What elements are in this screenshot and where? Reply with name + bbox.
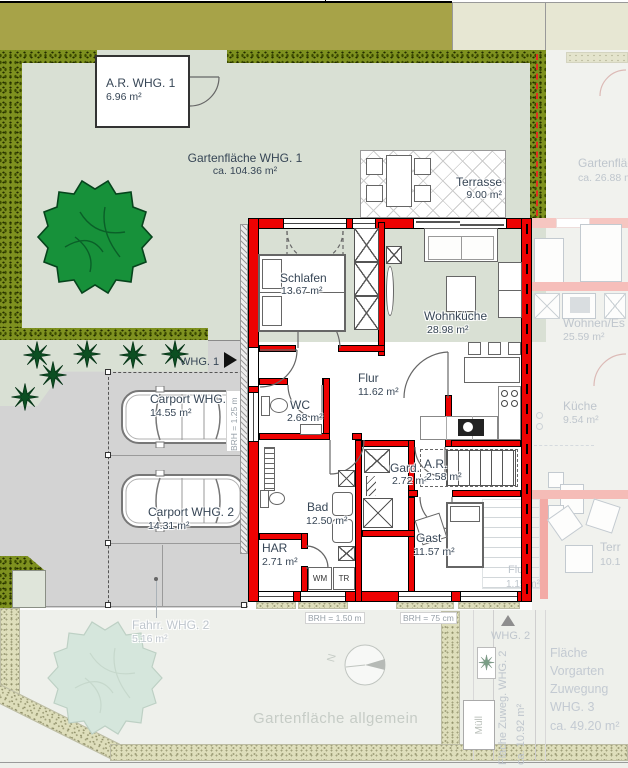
shed-area: 6.96 m²: [106, 91, 142, 104]
neighbor-wall: [532, 282, 628, 291]
carport1-area: 14.55 m²: [150, 407, 191, 420]
floor-plan: A.R. WHG. 1 6.96 m² Gartenfläche WHG. 1 …: [0, 0, 628, 768]
window-har: [258, 591, 294, 602]
room-area-gast: 11.57 m²: [414, 546, 455, 559]
wall-interior: [362, 440, 412, 447]
coat-rack: [366, 476, 376, 496]
service-shaft: [338, 546, 355, 561]
walkway-line: [535, 610, 536, 760]
field-strip-olive: [0, 3, 452, 50]
neighbor-kueche-area: 9.54 m²: [563, 414, 599, 427]
terrace-label: Terrasse 9.00 m²: [430, 175, 502, 202]
sliding-door-leaf: [460, 224, 504, 226]
wall-interior: [338, 345, 385, 352]
palm-shrub-icon: [38, 360, 68, 390]
window-bad: [300, 591, 346, 602]
terrace-chair: [366, 158, 383, 175]
garden2-label: Gartenfläc: [578, 156, 628, 170]
washing-machine: WM: [308, 567, 332, 590]
window-sill-gravel: [458, 602, 520, 609]
counter-divider: [446, 416, 447, 440]
entrance1-label: WHG. 1: [180, 356, 219, 369]
party-wall-dashes: [526, 224, 528, 596]
pillow: [262, 259, 282, 289]
room-area-schlafen: 13.67 m²: [281, 285, 322, 298]
carport-post: [105, 452, 111, 458]
garden1-label: Gartenfläche WHG. 1 ca. 104.36 m²: [150, 151, 340, 178]
room-area-gard: 2.72 m²: [392, 475, 428, 488]
vorgarten3-line2: Zuwegung: [550, 680, 628, 698]
room-label-gard: Gard.: [390, 461, 420, 475]
pillow: [450, 506, 480, 522]
neighbor-wall: [532, 490, 628, 499]
dining-chair: [468, 342, 481, 355]
neighbor-dash: [534, 445, 594, 446]
faded-hedge: [566, 52, 628, 63]
insulation-strip: [240, 224, 248, 554]
neighbor-wardrobe: [534, 238, 564, 284]
zuweg2-label: Fläche Zuweg. WHG. 2: [497, 645, 509, 765]
neighbor-sink: [570, 297, 590, 313]
carport-boundary-dashed-h: [108, 372, 248, 373]
toilet-bowl: [269, 492, 285, 505]
neighbor-terr-area: 10.1: [600, 556, 620, 569]
wohnkueche-door-arc: [402, 350, 452, 400]
neighbor-wohnen-label: Wohnen/Es: [563, 316, 625, 330]
window-french-door: [283, 218, 347, 229]
toilet-bowl: [270, 398, 288, 413]
muell-label: Müll: [474, 716, 485, 734]
leader-dot: [154, 577, 158, 581]
storage-divider: [162, 545, 163, 607]
hedge-top-right: [227, 50, 546, 63]
vorgarten3-line1: Fläche Vorgarten: [550, 644, 628, 680]
terrace-chair: [414, 185, 431, 202]
window-gast-west: [398, 591, 452, 602]
carport-boundary-dashed-v: [108, 372, 109, 608]
room-label-bad: Bad: [307, 500, 328, 514]
stove-burner: [501, 390, 508, 397]
neighbor-burner: [536, 423, 543, 430]
carport-divider: [108, 543, 248, 544]
window-sill-gravel: [298, 602, 348, 609]
gard-closet: [364, 449, 390, 473]
wall-interior: [452, 490, 521, 497]
room-area-flur: 11.62 m²: [358, 386, 399, 399]
neighbor-terrace-wall: [540, 499, 548, 599]
room-label-wc: WC: [290, 398, 310, 412]
stove-burner: [501, 400, 508, 407]
garden1-name: Gartenfläche WHG. 1: [150, 151, 340, 165]
shed-door-arc: [189, 74, 223, 110]
terrace-chair: [366, 185, 383, 202]
window-sill-gravel: [396, 602, 454, 609]
dryer: TR: [333, 567, 355, 590]
tree-icon: [35, 177, 155, 297]
tr-label: TR: [339, 574, 350, 583]
shed-label: A.R. WHG. 1: [106, 76, 175, 90]
garden2-area: ca. 26.88 m: [578, 172, 628, 185]
carport2-area: 14.31 m²: [148, 520, 189, 533]
neighbor-burner: [536, 412, 543, 419]
room-area-ar: 2.58 m²: [426, 471, 462, 484]
carport1-label: Carport WHG. 1: [150, 392, 236, 406]
palm-shrub-icon: [478, 654, 495, 671]
boundary-dashed-red: [536, 54, 538, 216]
neighbor-terr-label: Terr: [600, 540, 621, 554]
storage-line: [22, 606, 248, 607]
window-gast-east: [460, 591, 518, 602]
terrace-name: Terrasse: [430, 175, 502, 189]
mirror: [386, 266, 394, 316]
bottom-line: [0, 762, 628, 763]
coffee-table: [446, 276, 476, 312]
room-label-wohnkueche: Wohnküche: [424, 309, 487, 323]
wardrobe: [354, 262, 379, 296]
field-strip-beige: [452, 3, 628, 50]
room-label-ar: A.R.: [424, 457, 447, 471]
palm-shrub-icon: [72, 339, 102, 369]
room-area-har: 2.71 m²: [262, 556, 298, 569]
brh-label-bottom2: BRH = 75 cm: [400, 612, 457, 624]
radiator: [264, 447, 275, 491]
wm-label: WM: [313, 574, 327, 583]
palm-shrub-icon: [118, 340, 148, 370]
stove-burner: [511, 400, 518, 407]
brh-label-bottom1: BRH = 1.50 m: [305, 612, 365, 624]
shelf: [386, 246, 402, 264]
neighbor-cabinet: [534, 293, 560, 319]
room-area-bad: 12.50 m²: [306, 515, 347, 528]
wall-interior: [378, 222, 385, 356]
room-label-schlafen: Schlafen: [280, 271, 327, 285]
sink-basin: [463, 422, 473, 432]
neighbor-kueche-label: Küche: [563, 399, 597, 413]
wall-interior: [408, 490, 418, 497]
neighbor-wohnen-area: 25.59 m²: [563, 331, 604, 344]
compass-icon: [343, 643, 387, 687]
wc-sink: [300, 424, 322, 435]
toilet-tank: [260, 490, 269, 508]
carport-post: [105, 369, 111, 375]
room-label-gast: Gast: [416, 531, 441, 545]
terrace-table: [386, 155, 412, 207]
wall-interior: [323, 378, 330, 440]
zuweg2-area: ca. 10.92 m²: [515, 660, 527, 765]
room-label-flur: Flur: [358, 371, 379, 385]
muell-box: Müll: [463, 700, 495, 750]
wall-interior: [362, 530, 415, 537]
stove-burner: [511, 390, 518, 397]
sliding-door-leaf: [416, 221, 460, 223]
leader-line: [156, 580, 157, 618]
neighbor-bed: [580, 224, 622, 282]
palm-shrub-icon: [10, 382, 40, 412]
entrance2-arrow-icon: [501, 615, 515, 626]
terrace-area: 9.00 m²: [430, 189, 502, 202]
vorgarten3-line3: WHG. 3: [550, 698, 628, 716]
pillow: [262, 296, 282, 326]
entrance2-label: WHG. 2: [491, 630, 530, 642]
faded-door-arc: [592, 352, 628, 388]
entrance1-arrow-icon: [224, 352, 237, 368]
toilet-tank: [261, 396, 270, 416]
carport-post: [241, 602, 247, 608]
faded-door-arc: [598, 68, 628, 98]
room-area-wc: 2.68 m²: [287, 412, 323, 425]
fahrrad-label: Fahrr. WHG. 2: [132, 618, 209, 632]
gard-shaft: [363, 498, 393, 528]
path-strip-vertical: [441, 611, 460, 745]
dining-table: [464, 357, 520, 383]
hedge-right: [530, 50, 546, 220]
garden1-area: ca. 104.36 m²: [150, 165, 340, 178]
fahrrad-area: 5.16 m²: [132, 633, 168, 646]
path-strip: [0, 608, 20, 694]
terrace-chair: [414, 158, 431, 175]
path-strip-bottom: [110, 744, 628, 761]
garden-patch: [12, 570, 46, 608]
vorgarten3-line4: ca. 49.20 m²: [550, 717, 628, 735]
wardrobe: [354, 228, 379, 262]
carport-post: [105, 540, 111, 546]
washbasin: [332, 492, 353, 516]
dining-chair: [508, 342, 521, 355]
entrance-door-gap: [248, 347, 259, 387]
walkway-line: [545, 610, 546, 762]
carport2-label: Carport WHG. 2: [148, 505, 234, 519]
window-wc: [248, 392, 259, 442]
property-line: [545, 3, 546, 50]
carport-post: [105, 602, 111, 608]
sideboard-divider: [498, 290, 522, 291]
carport-divider: [108, 455, 248, 456]
neighbor-terrace-table: [565, 545, 593, 573]
room-label-har: HAR: [262, 541, 287, 555]
dining-chair: [488, 342, 501, 355]
wardrobe: [354, 296, 379, 330]
wall-interior: [445, 440, 521, 447]
room-area-wohnkueche: 28.98 m²: [427, 324, 468, 337]
garden-common-label: Gartenfläche allgemein: [253, 710, 418, 727]
service-shaft: [338, 470, 355, 487]
window-sill-gravel: [256, 602, 296, 609]
hedge-left: [0, 50, 22, 342]
sofa-divider: [461, 236, 462, 260]
vorgarten3-label: Fläche Vorgarten Zuwegung WHG. 3 ca. 49.…: [550, 644, 628, 735]
